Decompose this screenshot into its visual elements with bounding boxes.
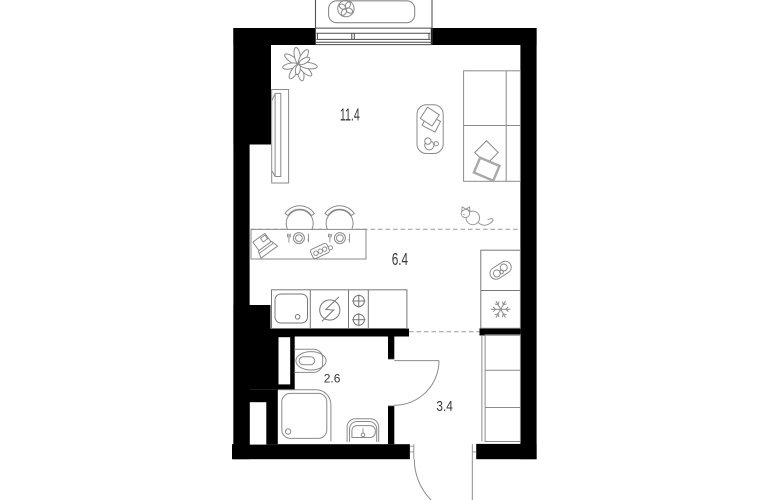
svg-text:3.4: 3.4 <box>436 399 453 415</box>
svg-text:6.4: 6.4 <box>392 249 409 269</box>
svg-text:11.4: 11.4 <box>340 105 360 125</box>
svg-text:2.6: 2.6 <box>324 371 341 385</box>
